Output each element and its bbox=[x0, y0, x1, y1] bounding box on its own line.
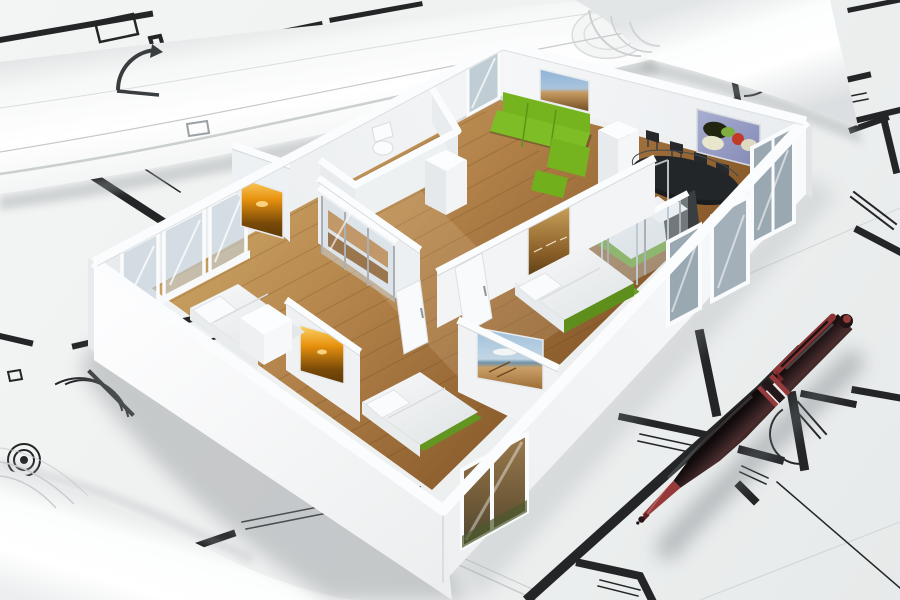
pen-cap-button bbox=[843, 315, 851, 323]
scene-3d-floorplan-render bbox=[0, 0, 900, 600]
column-pillar-1 bbox=[425, 150, 467, 215]
render-canvas bbox=[0, 0, 900, 600]
